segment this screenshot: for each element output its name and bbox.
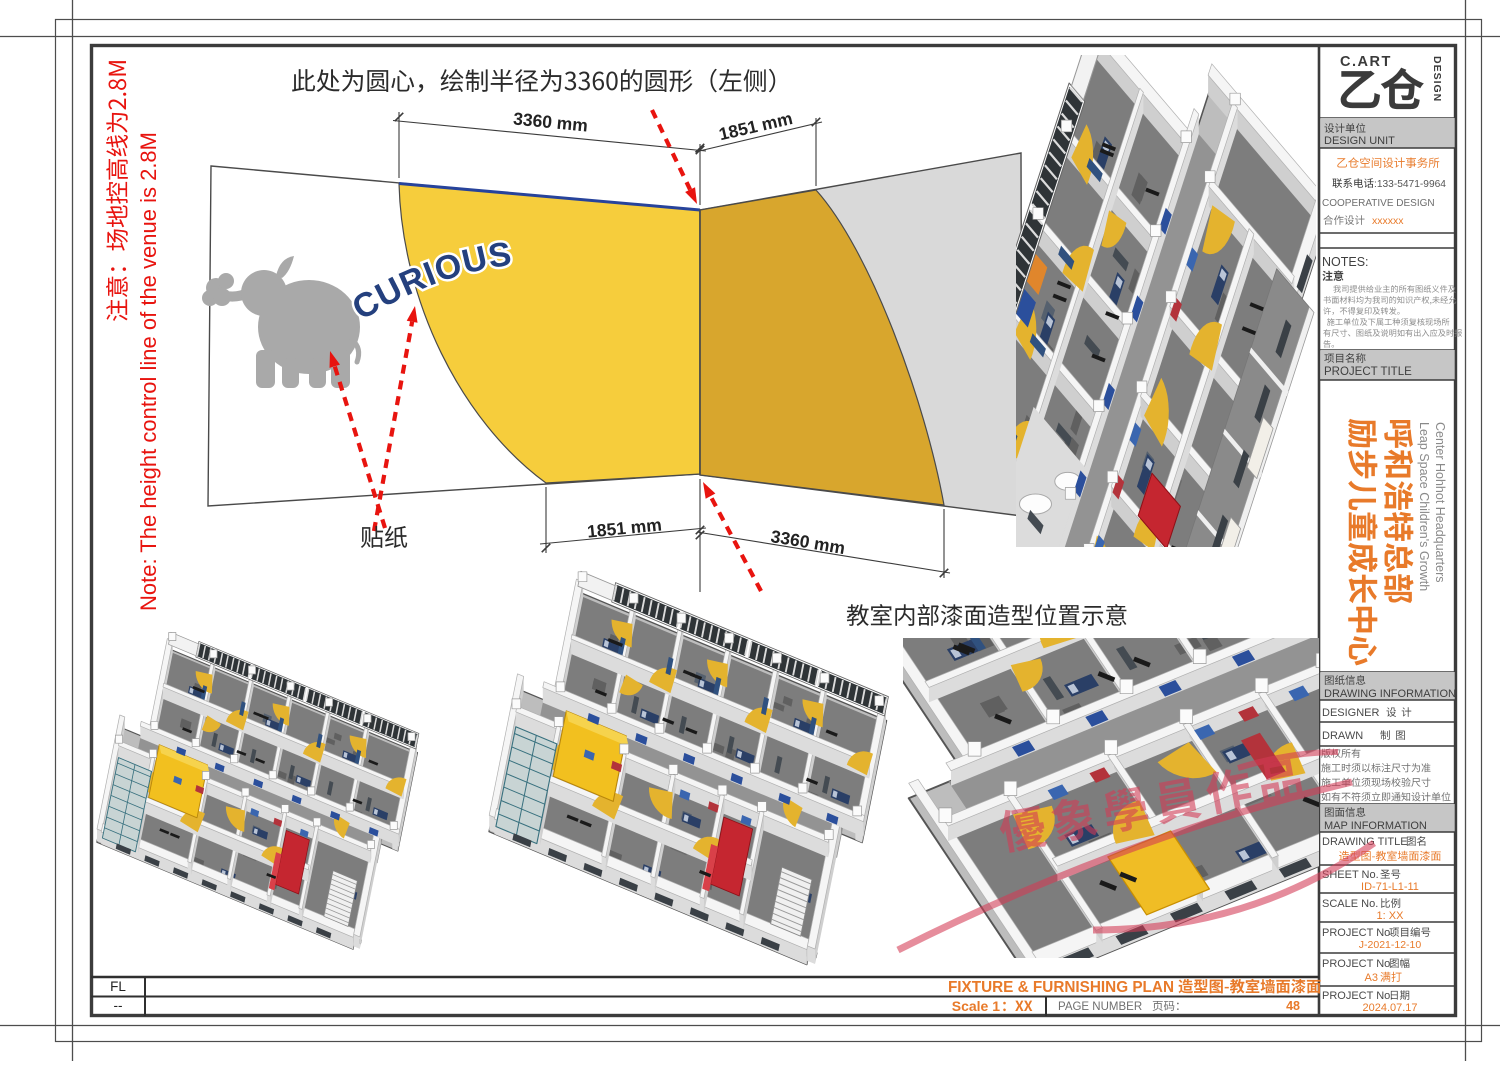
svg-text:FL: FL [110,979,126,994]
svg-text:Leap Space Children's Growth: Leap Space Children's Growth [1417,422,1431,591]
svg-text::133-5471-9964: :133-5471-9964 [1374,179,1446,190]
svg-text:Note: The height control line: Note: The height control line of the ven… [136,132,161,611]
svg-text:FIXTURE & FURNISHING PLAN: FIXTURE & FURNISHING PLAN [948,979,1174,996]
svg-text:--: -- [114,998,123,1013]
svg-text:ID-71-L1-11: ID-71-L1-11 [1361,881,1419,893]
svg-text:DESIGN UNIT: DESIGN UNIT [1324,135,1395,147]
svg-text:DESIGNER: DESIGNER [1322,707,1380,719]
svg-text:SCALE No.: SCALE No. [1322,898,1378,910]
svg-text:MAP INFORMATION: MAP INFORMATION [1324,820,1427,832]
svg-text:C.ART: C.ART [1340,54,1392,70]
svg-text:PAGE NUMBER: PAGE NUMBER [1058,1001,1142,1013]
svg-text:PROJECT TITLE: PROJECT TITLE [1324,366,1412,378]
svg-text:PROJECT No.: PROJECT No. [1322,990,1393,1002]
svg-text:NOTES:: NOTES: [1322,255,1369,269]
svg-text:DRAWING INFORMATION: DRAWING INFORMATION [1324,688,1456,700]
svg-text:Scale 1: Scale 1 [952,998,1000,1014]
svg-text:PROJECT No.: PROJECT No. [1322,958,1393,970]
svg-text:COOPERATIVE DESIGN: COOPERATIVE DESIGN [1322,198,1435,209]
svg-text:48: 48 [1286,999,1300,1013]
svg-text:DESIGN: DESIGN [1431,56,1443,102]
svg-text:xxxxxx: xxxxxx [1372,215,1404,227]
svg-text:A3: A3 [1365,972,1378,984]
svg-text:Center Hohhot Headquarters: Center Hohhot Headquarters [1433,422,1447,583]
svg-text:J-2021-12-10: J-2021-12-10 [1359,939,1422,951]
svg-text:2024.07.17: 2024.07.17 [1362,1002,1417,1014]
svg-text:PROJECT No.: PROJECT No. [1322,927,1393,939]
svg-text:1: XX: 1: XX [1377,910,1405,922]
svg-text:DRAWN: DRAWN [1322,730,1363,742]
